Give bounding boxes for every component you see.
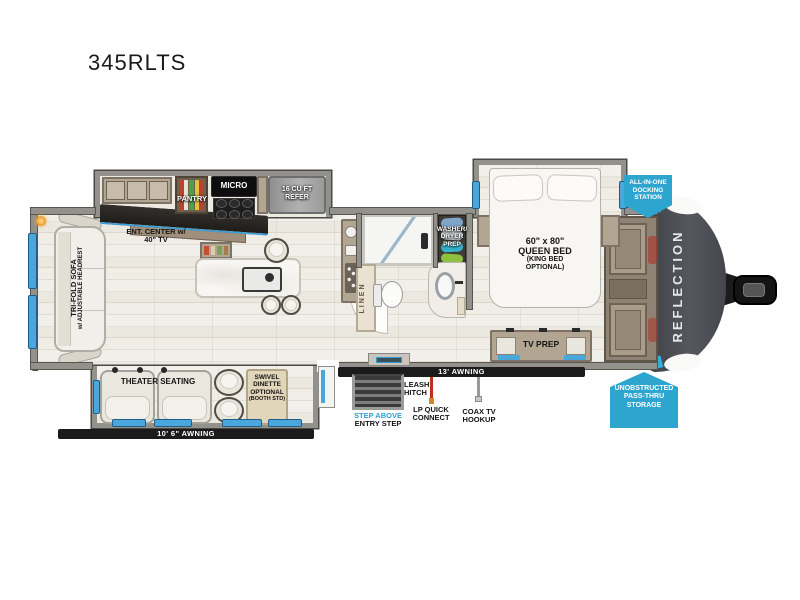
- passthru-storage-badge: UNOBSTRUCTED PASS-THRU STORAGE: [610, 372, 678, 428]
- dresser-knob: [506, 328, 514, 332]
- pantry-label: PANTRY: [172, 195, 212, 203]
- pillow-right: [547, 174, 598, 202]
- entry-steps: [352, 374, 404, 410]
- range-cooktop: [213, 198, 255, 219]
- sofa-slide-window-2: [154, 419, 192, 427]
- refrigerator-label: 16 CU FT REFER: [268, 186, 326, 202]
- cupholder: [161, 367, 167, 373]
- hitch-coupler: [733, 275, 777, 305]
- coax-hookup-connector: [475, 396, 482, 402]
- cupholder: [137, 367, 143, 373]
- vanity-sink: [435, 272, 455, 300]
- island-stool-bottom-left: [261, 295, 281, 315]
- rear-awning-bar: 10' 6" AWNING: [58, 429, 314, 439]
- sofa-label: TRI-FOLD SOFA w/ ADJUSTABLE HEADREST: [70, 218, 94, 358]
- storage-door-bottom: [609, 303, 647, 357]
- storage-tank-hint-top: [648, 236, 657, 264]
- dresser-mat-left: [498, 355, 520, 360]
- floorplan: 345RLTS PANTRY MICRO: [0, 0, 800, 600]
- toilet-bowl: [381, 281, 403, 308]
- island-sink: [242, 267, 282, 292]
- sofa-slide-window-left-wall: [93, 380, 100, 414]
- sofa-slide-window-4: [268, 419, 302, 427]
- kitchen-island: [195, 258, 301, 298]
- vanity-faucet: [455, 281, 463, 284]
- island-faucet: [265, 273, 274, 282]
- washer-dryer-label: WASHER/ DRYER PREP: [433, 226, 471, 248]
- cupholder: [112, 367, 118, 373]
- tv-prep-label: TV PREP: [490, 340, 592, 350]
- island-stool-bottom-right: [281, 295, 301, 315]
- leash-hitch-label: LEASH HITCH: [404, 381, 444, 398]
- sofa-slide-window-3: [222, 419, 262, 427]
- rear-window-top: [28, 233, 37, 289]
- entry-door: [318, 366, 335, 408]
- coupler-inner: [743, 283, 765, 297]
- coax-hookup-label: COAX TV HOOKUP: [450, 408, 508, 425]
- nightstand-right: [601, 215, 620, 247]
- porch-light: [36, 216, 46, 226]
- storage-middle: [609, 279, 647, 299]
- linen-label: LINEN: [359, 268, 373, 328]
- top-wall-mid: [329, 207, 476, 215]
- queen-bed-label: 60" x 80" QUEEN BED (KING BED OPTIONAL): [495, 236, 595, 272]
- brand-label: REFLECTION: [671, 216, 691, 356]
- bottom-wall-rear: [30, 362, 93, 370]
- overhead-cabinets: [102, 177, 172, 204]
- dresser-mat-right: [564, 355, 586, 360]
- microwave-label: MICRO: [211, 182, 257, 191]
- kitchen-counter-small: [257, 176, 268, 214]
- dresser-knob: [539, 328, 547, 332]
- dresser-knob: [572, 328, 580, 332]
- step-above-platform: [368, 353, 410, 366]
- ent-center-label: ENT. CENTER w/ 40" TV: [112, 228, 200, 245]
- bottle-shelf: [200, 242, 232, 259]
- sofa-slide-window-1: [112, 419, 146, 427]
- rear-window-bottom: [28, 295, 37, 349]
- entry-step-label: STEP ABOVE ENTRY STEP: [346, 412, 410, 429]
- top-wall-rear: [30, 207, 96, 215]
- dinette-chair-top: [214, 369, 244, 396]
- pillow-left: [493, 174, 544, 202]
- theater-seating-label: THEATER SEATING: [102, 378, 214, 387]
- entry-door-window: [321, 370, 325, 403]
- page-title: 345RLTS: [88, 50, 186, 76]
- dinette-label: SWIVEL DINETTE OPTIONAL (BOOTH STD): [244, 374, 290, 402]
- shower-fixture: [421, 233, 428, 249]
- lp-connect-nozzle: [429, 398, 434, 404]
- vanity-shelf: [457, 297, 465, 315]
- island-stool-top: [264, 238, 289, 263]
- bath-wall-left: [356, 213, 362, 268]
- bed-slide-window-left: [472, 181, 480, 209]
- step-platform-inset: [376, 357, 402, 363]
- storage-tank-hint-bottom: [648, 318, 657, 342]
- shower: [362, 214, 434, 266]
- bath-vanity: [428, 262, 466, 318]
